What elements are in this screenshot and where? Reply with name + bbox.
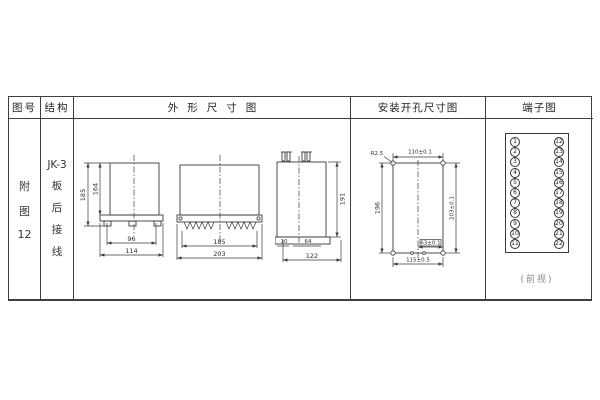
specification-sheet: 图号 结构 外形尺寸图 安装开孔尺寸图 端子图 附 图 12 JK-3 板 后 … (0, 0, 600, 400)
terminal-circle: 9 (510, 219, 520, 229)
terminal-circle: 15 (554, 168, 564, 178)
terminal-circle: 11 (510, 239, 520, 249)
terminal-circle: 3 (510, 157, 520, 167)
rear-view-drawing: 191 10 64 122 (275, 140, 355, 270)
structure-line: 线 (52, 244, 63, 259)
terminal-circle: 10 (510, 229, 520, 239)
header-figure-no: 图号 (9, 97, 41, 119)
terminal-circle: 4 (510, 168, 520, 178)
terminal-circle: 16 (554, 178, 564, 188)
terminal-circle: 20 (554, 219, 564, 229)
dim-label-122-depth: 122 (306, 252, 318, 260)
terminal-diagram: 1 2 3 4 5 6 7 8 9 10 11 12 13 14 15 16 1… (505, 133, 569, 253)
dim-label-191-height: 191 (339, 193, 347, 205)
figure-no-line: 图 (19, 203, 30, 219)
terminal-caption: (前视) (505, 272, 569, 285)
terminal-circle: 18 (554, 198, 564, 208)
terminal-circle: 2 (510, 147, 520, 157)
terminal-circle: 19 (554, 208, 564, 218)
dim-label-164-height: 164 (92, 183, 100, 195)
terminal-circle: 22 (554, 239, 564, 249)
terminal-circle: 13 (554, 147, 564, 157)
front-view-drawing: 185 203 (175, 143, 270, 268)
mounting-cutout-drawing: R2.5 110±0.1 196 203±0.1 63±0.1 115±0.5 (365, 140, 475, 270)
structure-line: JK-3 (47, 159, 66, 171)
dim-label-114-width: 114 (125, 247, 137, 255)
terminal-circle: 17 (554, 188, 564, 198)
dim-label-64-depth: 64 (305, 239, 312, 245)
figure-number-cell: 附 图 12 (9, 119, 41, 299)
header-outline: 外形尺寸图 (74, 97, 351, 119)
terminal-circle: 21 (554, 229, 564, 239)
header-terminals: 端子图 (486, 97, 593, 119)
structure-line: 后 (52, 200, 63, 215)
dim-label-cutout-height: 196 (374, 202, 382, 214)
dim-label-185-width: 185 (213, 238, 225, 246)
terminal-circle: 5 (510, 178, 520, 188)
structure-cell: JK-3 板 后 接 线 (41, 119, 74, 299)
structure-line: 板 (52, 178, 63, 193)
figure-no-line: 附 (19, 178, 30, 194)
terminal-circle: 1 (510, 137, 520, 147)
terminal-circle: 8 (510, 208, 520, 218)
dim-label-96-width: 96 (127, 235, 135, 243)
terminal-column-left: 1 2 3 4 5 6 7 8 9 10 11 (510, 137, 520, 249)
dim-label-hole-span-v: 203±0.1 (450, 196, 456, 220)
dim-label-185-height: 185 (80, 189, 87, 201)
dim-label-bottom-span: 63±0.1 (420, 241, 440, 247)
dim-label-hole-span-h: 110±0.1 (408, 150, 432, 156)
terminal-column-right: 12 13 14 15 16 17 18 19 20 21 22 (554, 137, 564, 249)
dim-label-203-width: 203 (213, 250, 225, 258)
header-structure: 结构 (41, 97, 74, 119)
dim-label-cutout-width: 115±0.5 (406, 258, 430, 264)
dim-label-10-depth: 10 (281, 239, 288, 245)
dim-label-corner-radius: R2.5 (371, 151, 384, 157)
structure-line: 接 (52, 222, 63, 237)
terminal-circle: 7 (510, 198, 520, 208)
side-view-drawing: 185 164 96 114 (80, 143, 172, 268)
header-mounting: 安装开孔尺寸图 (351, 97, 486, 119)
terminal-circle: 12 (554, 137, 564, 147)
terminal-circle: 14 (554, 157, 564, 167)
terminal-circle: 6 (510, 188, 520, 198)
figure-no-line: 12 (18, 228, 32, 241)
